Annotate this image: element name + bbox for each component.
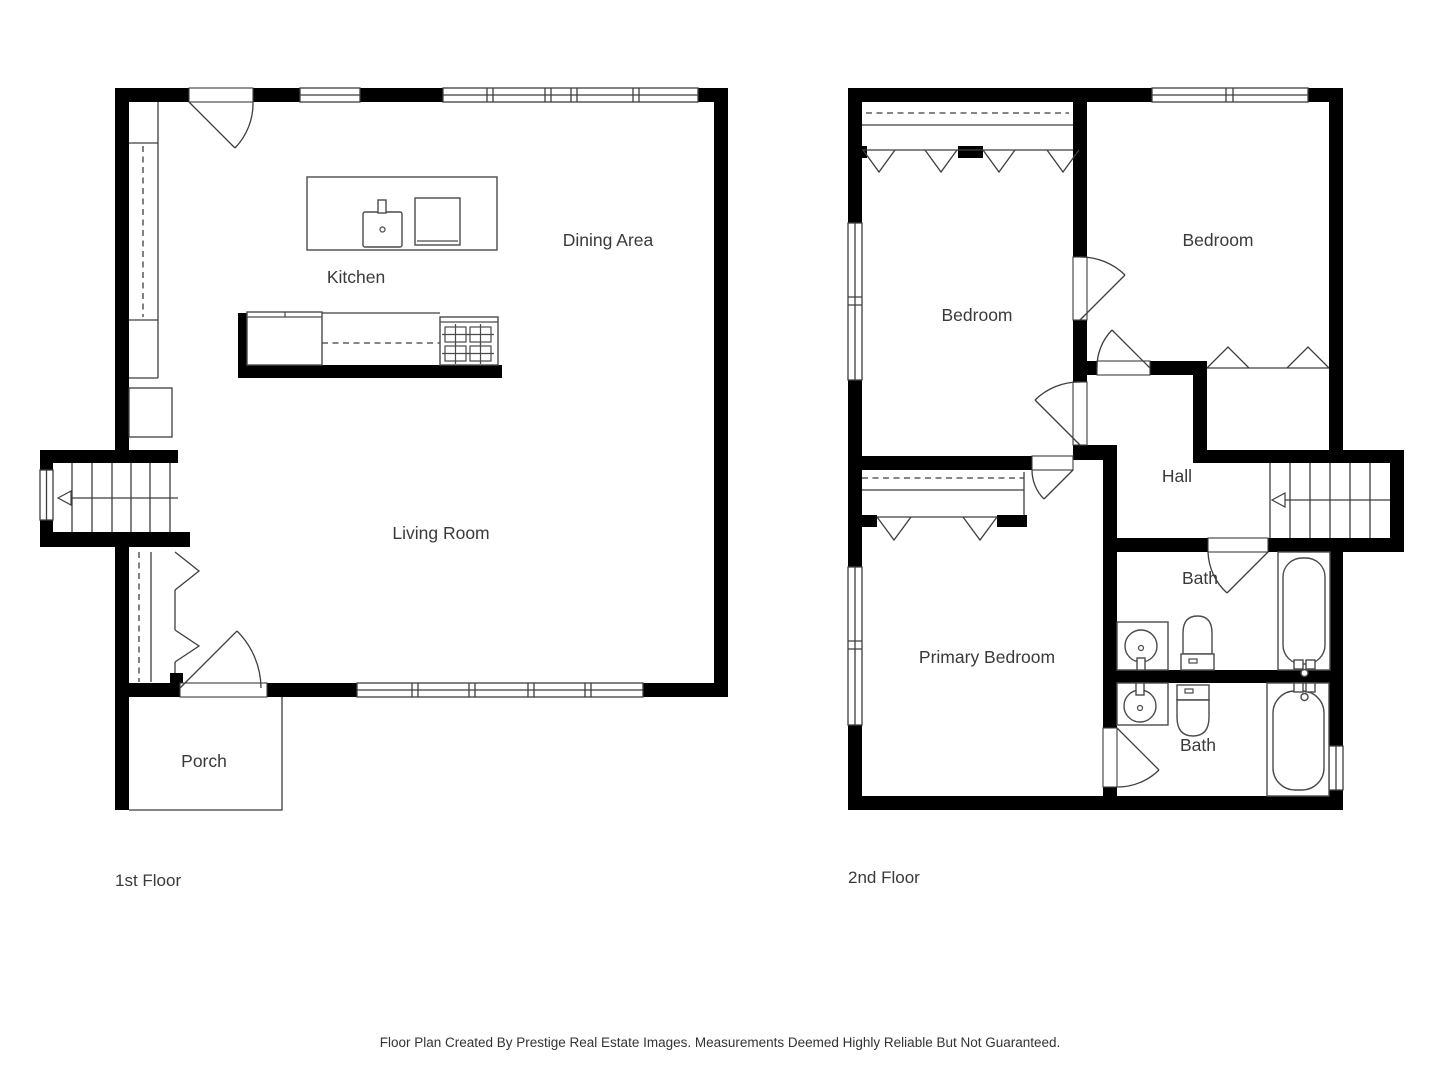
door-swing: [1035, 382, 1087, 445]
first-floor-plan: [40, 88, 728, 810]
kitchen-island: [307, 177, 497, 250]
footer-disclaimer: Floor Plan Created By Prestige Real Esta…: [0, 1035, 1440, 1050]
staircase: [58, 463, 178, 532]
kitchen-counter: [247, 312, 498, 365]
closet-bifold-door: [175, 552, 199, 590]
floor-plan-drawing: [0, 0, 1440, 1080]
closet-bifold-door: [925, 150, 957, 172]
refrigerator: [247, 312, 322, 365]
faucet-icon: [1136, 683, 1144, 695]
room-label-porch: Porch: [181, 751, 227, 771]
room-label-bath: Bath: [1182, 568, 1218, 588]
door-swing: [1073, 257, 1125, 320]
faucet-icon: [1306, 660, 1315, 669]
primary-bedroom-closet: [862, 472, 1024, 540]
burner-icon: [467, 343, 494, 364]
staircase: [1270, 463, 1390, 538]
faucet-icon: [1137, 658, 1145, 670]
burner-icon: [442, 324, 469, 345]
second-floor-plan: [848, 88, 1404, 810]
closet-bifold-door: [877, 517, 911, 540]
door-swing: [1103, 728, 1159, 787]
stair-arrow-icon: [58, 491, 71, 505]
closet-bifold-door: [1207, 347, 1249, 368]
bathtub: [1278, 552, 1330, 677]
bathroom-fixtures: [1117, 683, 1329, 796]
closet-bifold-door: [983, 150, 1015, 172]
toilet: [1177, 685, 1209, 736]
floor-caption-first: 1st Floor: [115, 871, 181, 891]
closet-bifold-door: [863, 150, 895, 172]
door-swing: [189, 88, 253, 148]
closet-bifold-door: [175, 630, 199, 662]
stair-arrow-icon: [1272, 493, 1285, 507]
closet-box: [129, 388, 172, 437]
faucet-icon: [1306, 683, 1315, 692]
pantry-cabinet: [129, 102, 172, 437]
bathroom-sink: [1117, 622, 1168, 670]
room-label-living-room: Living Room: [392, 523, 489, 543]
burner-icon: [467, 324, 494, 345]
room-label-bath: Bath: [1180, 735, 1216, 755]
faucet-icon: [1294, 660, 1303, 669]
faucet-icon: [1294, 683, 1303, 692]
entry-closet: [139, 552, 199, 682]
floor-plan-page: Kitchen Dining Area Living Room Porch Be…: [0, 0, 1440, 1080]
room-label-primary-bedroom: Primary Bedroom: [919, 647, 1055, 667]
toilet: [1181, 616, 1214, 670]
room-label-hall: Hall: [1162, 466, 1192, 486]
bathtub: [1267, 683, 1329, 796]
bathroom-fixtures: [1117, 552, 1330, 677]
floor-caption-second: 2nd Floor: [848, 868, 920, 888]
room-label-dining-area: Dining Area: [563, 230, 653, 250]
faucet-icon: [378, 200, 386, 213]
room-label-kitchen: Kitchen: [327, 267, 385, 287]
door-swing: [1032, 456, 1073, 499]
dishwasher: [415, 198, 460, 245]
burner-icon: [442, 343, 469, 364]
closet-bifold-door: [963, 517, 997, 540]
door-swing: [1097, 330, 1150, 375]
bathroom-sink: [1117, 683, 1168, 725]
door-swing: [180, 631, 267, 697]
room-label-bedroom: Bedroom: [941, 305, 1012, 325]
bedroom-closet: [1207, 347, 1329, 368]
closet-bifold-door: [1287, 347, 1329, 368]
room-label-bedroom: Bedroom: [1182, 230, 1253, 250]
bedroom-closet: [862, 113, 1079, 172]
stove: [440, 317, 498, 365]
